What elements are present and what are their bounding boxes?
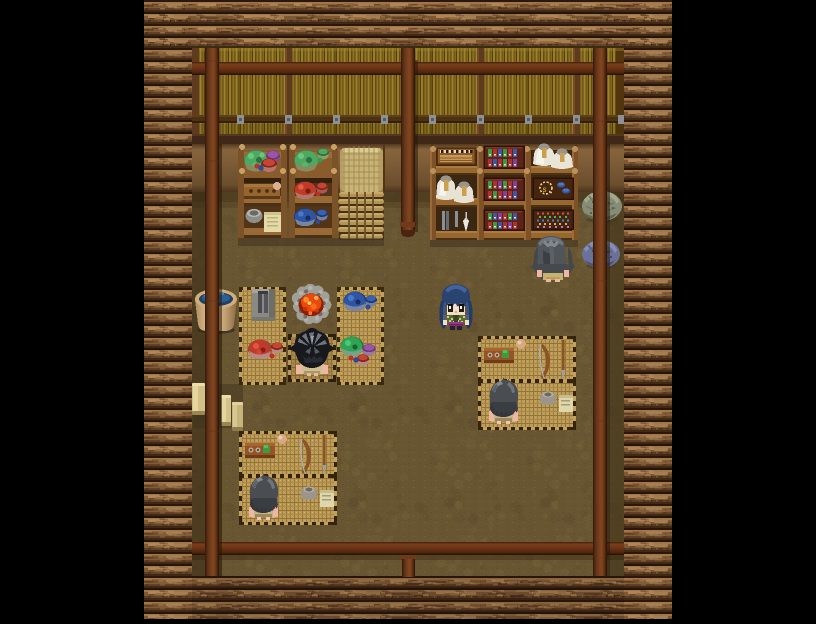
svg-text:s: s — [543, 185, 547, 194]
